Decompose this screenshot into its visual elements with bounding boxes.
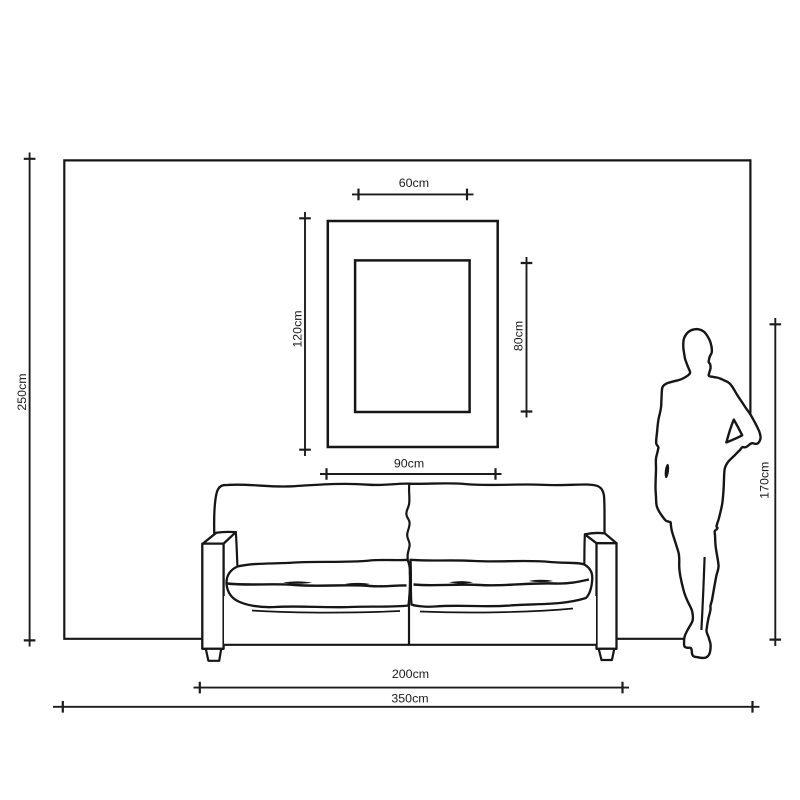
svg-text:90cm: 90cm <box>394 457 424 471</box>
svg-text:350cm: 350cm <box>391 691 428 705</box>
svg-text:120cm: 120cm <box>290 310 304 347</box>
svg-text:80cm: 80cm <box>512 321 526 351</box>
svg-text:250cm: 250cm <box>15 373 29 410</box>
svg-text:60cm: 60cm <box>399 176 429 190</box>
svg-text:200cm: 200cm <box>392 667 429 681</box>
svg-text:170cm: 170cm <box>757 462 771 499</box>
